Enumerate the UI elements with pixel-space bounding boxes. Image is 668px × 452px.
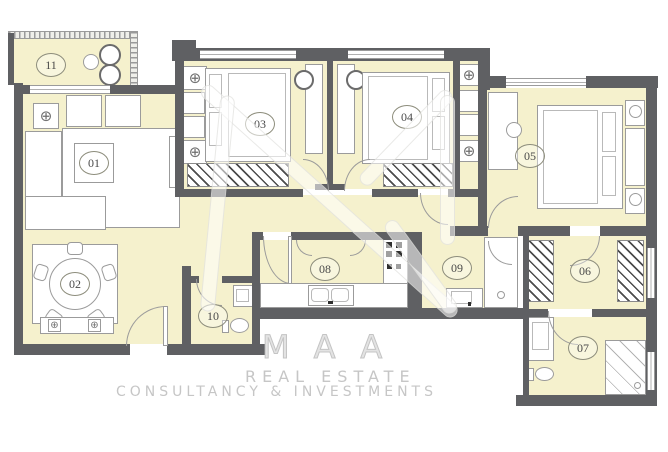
desk-chair (294, 70, 314, 90)
ceiling-fan-icon: ⊕ (458, 140, 480, 162)
wall (252, 232, 260, 344)
balcony-chair (99, 64, 121, 86)
cabinet (458, 90, 480, 112)
cabinet-knob (506, 122, 522, 138)
wall (252, 232, 263, 240)
balcony-chair (99, 44, 121, 66)
wall (175, 61, 184, 191)
balcony-railing (8, 31, 138, 39)
window (30, 85, 110, 94)
wall (167, 344, 266, 355)
ceiling-fan-icon: ⊕ (458, 64, 480, 86)
armchair (105, 95, 141, 127)
room-label-01: 01 (79, 151, 109, 175)
balcony-table (83, 54, 99, 70)
armchair (66, 95, 102, 127)
wall (372, 189, 418, 197)
room-label-07: 07 (568, 336, 598, 360)
wall (600, 226, 646, 236)
nightstand (183, 116, 205, 138)
room-label-02: 02 (60, 272, 90, 296)
wall (14, 85, 30, 94)
window (506, 78, 586, 86)
cabinet (625, 128, 645, 186)
wall (14, 344, 130, 355)
sink-basin (236, 289, 249, 302)
lamp (629, 193, 642, 206)
cabinet (458, 114, 480, 136)
wall (182, 266, 191, 344)
wardrobe (617, 240, 644, 302)
faucet (468, 302, 471, 306)
faucet (328, 301, 333, 304)
dining-chair (67, 242, 83, 255)
room-label-08: 08 (310, 257, 340, 281)
room-label-11: 11 (36, 53, 66, 77)
entrance-door-leaf (163, 306, 168, 346)
wall (327, 61, 333, 186)
window (647, 248, 655, 298)
wall (478, 88, 487, 228)
toilet-bowl (230, 318, 249, 333)
wall (222, 276, 257, 283)
ceiling-fan-icon: ⊕ (33, 103, 59, 129)
room-label-09: 09 (442, 256, 472, 280)
wall (592, 309, 646, 317)
wall (14, 83, 23, 355)
watermark-ribbon (440, 95, 455, 245)
ceiling-fan-icon: ⊕ (88, 319, 101, 332)
pillow (602, 156, 616, 196)
sofa (25, 196, 106, 230)
ceiling-fan-icon: ⊕ (183, 140, 207, 164)
wall (480, 76, 506, 88)
wall (258, 308, 524, 319)
pillow (602, 112, 616, 152)
floor-drain (634, 382, 641, 389)
room-label-06: 06 (570, 259, 600, 283)
wall (450, 226, 488, 236)
wall (518, 226, 570, 236)
window (200, 50, 296, 59)
room-label-05: 05 (515, 144, 545, 168)
door-leaf-kitchen (288, 236, 292, 284)
balcony-railing (130, 31, 138, 87)
sink-basin (532, 322, 549, 350)
bed-cover (543, 110, 598, 204)
floor-plan: ⊕ ⊕ ⊕ ⊕ ⊕ ⊕ ⊕ (0, 0, 668, 452)
ceiling-fan-icon: ⊕ (48, 319, 61, 332)
wardrobe (528, 240, 554, 302)
window (348, 50, 444, 59)
wall (526, 309, 548, 317)
watermark-line2: CONSULTANCY & INVESTMENTS (116, 384, 437, 400)
window (647, 352, 655, 390)
floor-drain (497, 291, 505, 299)
wall (110, 85, 182, 94)
wall (516, 395, 657, 406)
lamp (629, 105, 642, 118)
toilet-bowl (535, 367, 554, 381)
wardrobe (187, 163, 289, 187)
wall (8, 33, 14, 85)
wall (175, 189, 303, 197)
sink-basin (331, 288, 349, 302)
sink-basin (311, 288, 329, 302)
watermark-brand: MAA (262, 328, 406, 366)
